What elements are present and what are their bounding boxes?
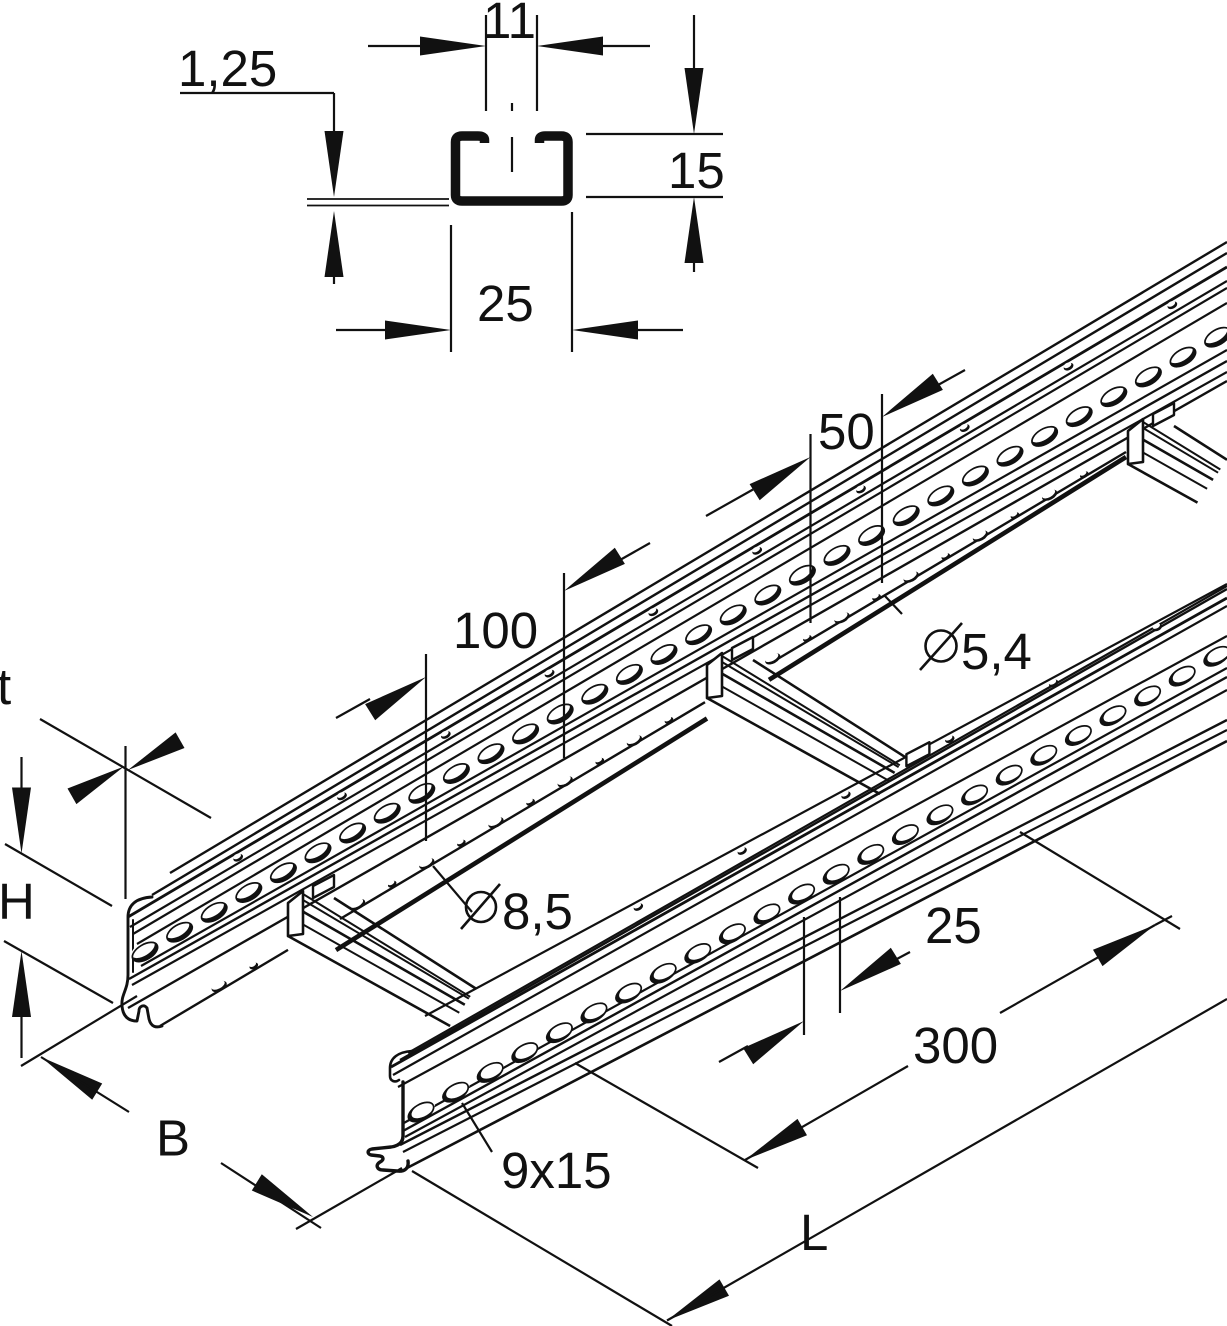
svg-text:25: 25 <box>925 897 982 954</box>
svg-text:9x15: 9x15 <box>501 1142 612 1199</box>
svg-text:B: B <box>156 1110 190 1167</box>
svg-text:L: L <box>800 1204 828 1261</box>
svg-text:50: 50 <box>818 403 875 460</box>
svg-text:100: 100 <box>453 602 538 659</box>
svg-text:15: 15 <box>668 142 725 199</box>
svg-text:11: 11 <box>483 0 536 49</box>
svg-text:5,4: 5,4 <box>961 623 1032 680</box>
svg-text:H: H <box>0 873 35 930</box>
svg-text:t: t <box>0 658 11 715</box>
svg-text:25: 25 <box>477 275 534 332</box>
svg-text:1,25: 1,25 <box>178 40 277 97</box>
svg-text:8,5: 8,5 <box>502 883 573 940</box>
svg-text:300: 300 <box>913 1017 998 1074</box>
